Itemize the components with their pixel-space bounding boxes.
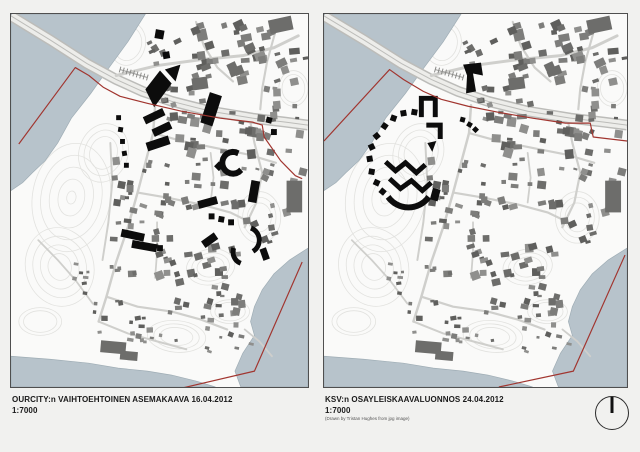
north-arrow-needle — [611, 397, 614, 413]
right-map-credit: (Drawn by Tristan Hughes from jpg image) — [325, 416, 504, 422]
left-map-title: OURCITY:n VAIHTOEHTOINEN ASEMAKAAVA 16.0… — [12, 394, 233, 405]
right-map-scale: 1:7000 — [325, 405, 504, 416]
right-map-panel — [323, 13, 628, 388]
left-map-panel — [10, 13, 309, 388]
right-map-title: KSV:n OSAYLEISKAAVALUONNOS 24.04.2012 — [325, 394, 504, 405]
left-map-canvas — [11, 14, 308, 387]
right-map-caption: KSV:n OSAYLEISKAAVALUONNOS 24.04.2012 1:… — [325, 394, 504, 422]
north-arrow-icon — [595, 396, 629, 430]
plan-comparison-sheet: OURCITY:n VAIHTOEHTOINEN ASEMAKAAVA 16.0… — [0, 0, 640, 452]
left-map-scale: 1:7000 — [12, 405, 233, 416]
right-map-canvas — [324, 14, 627, 387]
left-map-caption: OURCITY:n VAIHTOEHTOINEN ASEMAKAAVA 16.0… — [12, 394, 233, 416]
